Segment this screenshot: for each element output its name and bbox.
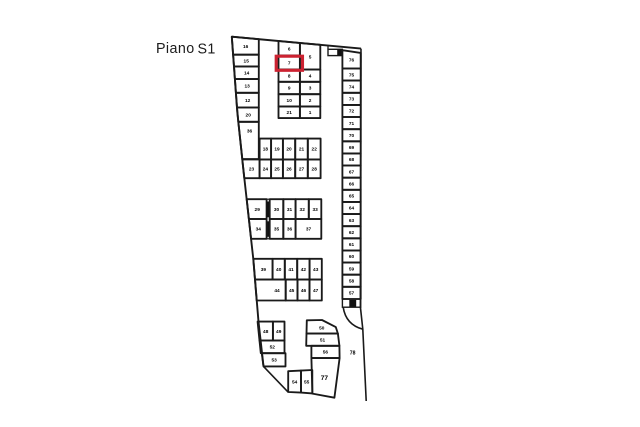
svg-text:47: 47 [313, 288, 319, 294]
svg-text:10: 10 [287, 98, 293, 104]
svg-text:65: 65 [349, 194, 355, 200]
svg-text:62: 62 [349, 230, 355, 236]
svg-text:15: 15 [244, 58, 250, 64]
svg-text:30: 30 [274, 207, 280, 213]
svg-text:69: 69 [349, 145, 355, 151]
svg-text:36: 36 [287, 227, 293, 233]
svg-text:75: 75 [349, 72, 355, 78]
svg-text:S1: S1 [198, 42, 216, 58]
svg-text:21: 21 [299, 147, 305, 153]
svg-text:42: 42 [301, 267, 307, 273]
svg-text:70: 70 [349, 133, 355, 139]
svg-text:43: 43 [313, 267, 319, 273]
svg-text:2: 2 [309, 98, 312, 104]
svg-text:74: 74 [349, 84, 355, 90]
svg-text:78: 78 [350, 351, 356, 357]
svg-text:37: 37 [306, 227, 312, 233]
svg-text:68: 68 [349, 157, 355, 163]
svg-text:35: 35 [274, 227, 280, 233]
svg-text:21: 21 [287, 110, 293, 116]
svg-text:56: 56 [323, 350, 329, 356]
svg-text:48: 48 [263, 329, 269, 335]
svg-text:61: 61 [349, 242, 355, 248]
svg-text:58: 58 [349, 279, 355, 285]
svg-text:28: 28 [312, 167, 318, 173]
svg-text:19: 19 [274, 147, 280, 153]
svg-text:16: 16 [243, 44, 249, 50]
svg-text:49: 49 [276, 329, 282, 335]
svg-text:20: 20 [246, 112, 252, 118]
svg-text:34: 34 [256, 227, 262, 233]
svg-text:23: 23 [249, 167, 255, 173]
svg-text:45: 45 [289, 288, 295, 294]
svg-text:29: 29 [255, 207, 261, 213]
svg-text:55: 55 [304, 379, 310, 385]
svg-text:4: 4 [309, 73, 312, 79]
svg-text:46: 46 [301, 288, 307, 294]
svg-text:6: 6 [288, 47, 291, 53]
svg-text:33: 33 [312, 207, 318, 213]
svg-text:66: 66 [349, 181, 355, 187]
svg-text:7: 7 [288, 60, 291, 66]
svg-text:59: 59 [349, 266, 355, 272]
svg-text:51: 51 [320, 337, 326, 343]
svg-text:5: 5 [309, 55, 312, 61]
svg-text:41: 41 [288, 267, 294, 273]
svg-text:40: 40 [276, 267, 282, 273]
svg-text:72: 72 [349, 109, 355, 115]
svg-text:67: 67 [349, 169, 355, 175]
svg-text:71: 71 [349, 121, 355, 127]
svg-text:13: 13 [244, 84, 250, 90]
svg-text:64: 64 [349, 206, 355, 212]
svg-text:22: 22 [312, 147, 318, 153]
svg-text:60: 60 [349, 254, 355, 260]
svg-text:Piano: Piano [156, 41, 195, 57]
svg-text:18: 18 [263, 147, 269, 153]
svg-text:26: 26 [286, 167, 292, 173]
svg-text:36: 36 [247, 129, 253, 135]
svg-text:73: 73 [349, 97, 355, 103]
svg-text:44: 44 [274, 288, 280, 294]
svg-text:50: 50 [319, 326, 325, 332]
svg-text:39: 39 [261, 267, 267, 273]
svg-text:76: 76 [349, 58, 355, 64]
svg-text:31: 31 [287, 207, 293, 213]
svg-text:24: 24 [263, 167, 269, 173]
svg-text:8: 8 [288, 73, 291, 79]
svg-text:20: 20 [286, 147, 292, 153]
svg-text:54: 54 [292, 379, 298, 385]
svg-text:25: 25 [274, 167, 280, 173]
svg-text:12: 12 [245, 98, 251, 104]
svg-text:63: 63 [349, 218, 355, 224]
svg-text:9: 9 [288, 86, 291, 92]
svg-text:53: 53 [271, 358, 277, 364]
svg-text:27: 27 [299, 167, 305, 173]
svg-text:57: 57 [349, 291, 355, 297]
svg-text:1: 1 [309, 110, 312, 116]
svg-text:32: 32 [300, 207, 306, 213]
svg-text:77: 77 [321, 375, 329, 382]
svg-text:14: 14 [244, 71, 250, 77]
svg-text:52: 52 [270, 345, 276, 351]
svg-text:3: 3 [309, 86, 312, 92]
